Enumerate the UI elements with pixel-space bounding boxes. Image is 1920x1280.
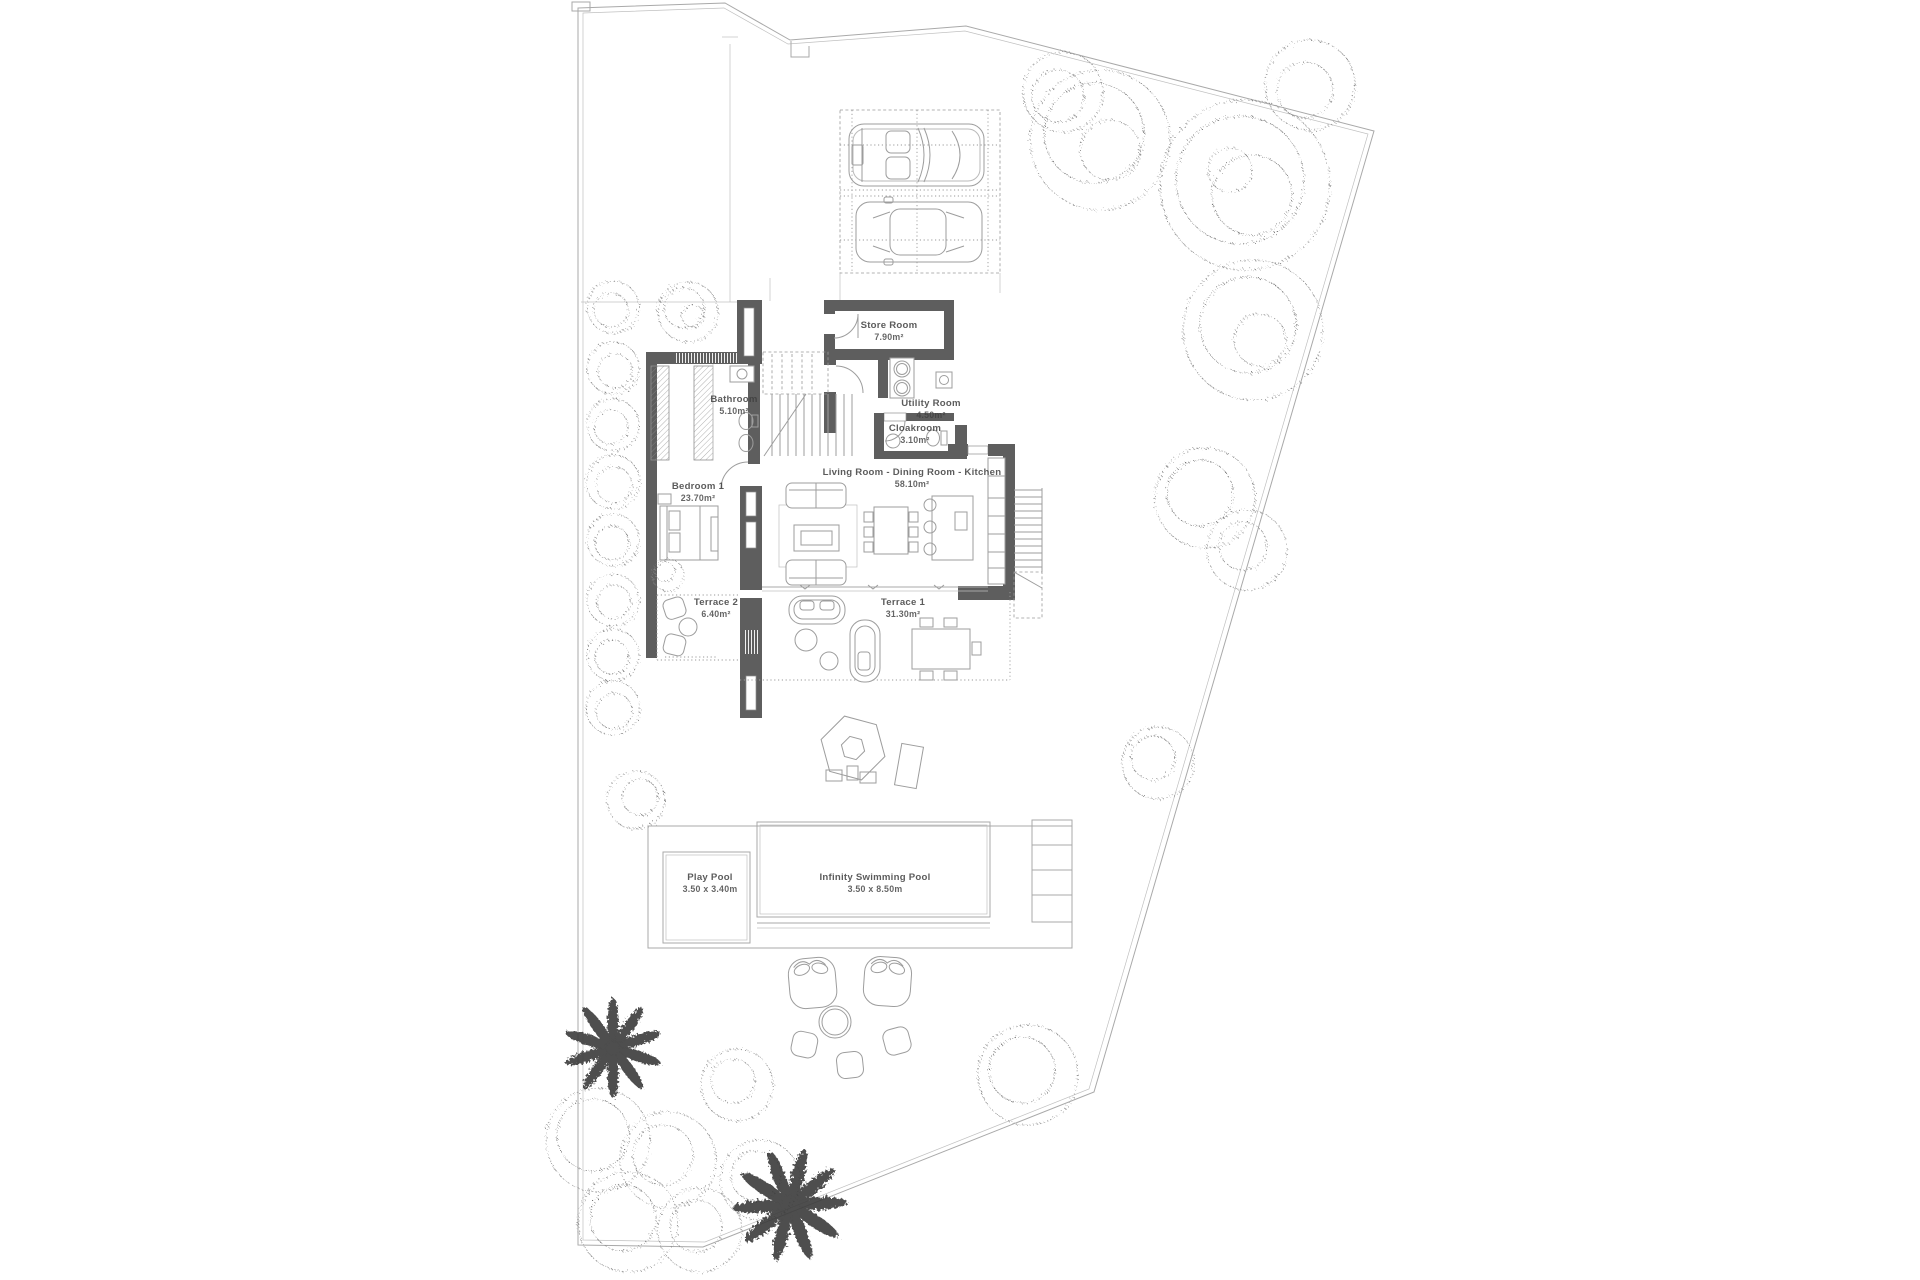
utility-sink-icon xyxy=(936,372,952,388)
sun-lounger xyxy=(787,956,838,1010)
pouf xyxy=(790,1030,820,1060)
label-store-room-area: 7.90m² xyxy=(874,332,903,342)
sun-lounger xyxy=(862,955,912,1007)
staircase xyxy=(763,352,852,456)
label-terrace-2: Terrace 2 xyxy=(694,597,738,608)
sofa-set xyxy=(779,483,857,585)
terrace-1-area xyxy=(740,592,1010,682)
label-bathroom-area: 5.10m² xyxy=(719,406,748,416)
washer-dryer-icon xyxy=(890,358,914,398)
umbrella-icon xyxy=(821,716,885,783)
label-terrace-1-area: 31.30m² xyxy=(886,609,921,619)
floor-plan-drawing: Store Room 7.90m² Bathroom 5.10m² Utilit… xyxy=(0,0,1920,1280)
terrace-armchair xyxy=(661,595,687,621)
play-pool xyxy=(663,852,750,943)
label-infinity-pool-dims: 3.50 x 8.50m xyxy=(848,884,903,894)
label-bathroom: Bathroom xyxy=(710,394,757,405)
plot-boundary xyxy=(572,2,1374,1247)
wardrobe xyxy=(651,364,713,460)
sliding-glass-doors xyxy=(762,585,988,591)
convertible-car-icon xyxy=(849,124,984,186)
dining-table-set xyxy=(864,507,918,554)
side-table xyxy=(679,618,697,636)
terrace-armchair xyxy=(662,633,687,657)
label-utility-room-area: 4.50m² xyxy=(916,410,945,420)
round-coffee-table xyxy=(795,629,817,651)
outdoor-sofa xyxy=(789,596,845,624)
label-bedroom-1-area: 23.70m² xyxy=(681,493,716,503)
label-cloakroom: Cloakroom xyxy=(889,423,941,434)
floor-plan-page: Store Room 7.90m² Bathroom 5.10m² Utilit… xyxy=(0,0,1920,1280)
shrub-row xyxy=(586,281,640,735)
label-bedroom-1: Bedroom 1 xyxy=(672,481,725,492)
pouf xyxy=(881,1025,913,1057)
label-store-room: Store Room xyxy=(861,320,918,331)
palm-tree-icon xyxy=(732,1148,848,1262)
gate-icon xyxy=(572,2,590,11)
outdoor-dining-set xyxy=(912,618,981,680)
deck-strip xyxy=(676,353,737,363)
round-coffee-table xyxy=(820,652,838,670)
pool-steps xyxy=(1032,820,1072,922)
label-living-room-area: 58.10m² xyxy=(895,479,930,489)
label-terrace-1: Terrace 1 xyxy=(881,597,926,608)
label-terrace-2-area: 6.40m² xyxy=(701,609,730,619)
sedan-car-icon xyxy=(856,197,982,265)
label-utility-room: Utility Room xyxy=(901,398,961,409)
kitchen-island xyxy=(924,496,973,560)
lounge-mat xyxy=(895,743,924,788)
label-infinity-pool: Infinity Swimming Pool xyxy=(819,872,930,883)
pouf xyxy=(836,1051,865,1080)
label-cloakroom-area: 3.10m² xyxy=(900,435,929,445)
bed xyxy=(658,494,718,560)
label-play-pool: Play Pool xyxy=(687,872,732,883)
label-living-room: Living Room - Dining Room - Kitchen xyxy=(823,467,1002,478)
label-play-pool-dims: 3.50 x 3.40m xyxy=(683,884,738,894)
palm-tree-icon xyxy=(564,998,663,1098)
exterior-staircase xyxy=(1014,488,1042,618)
daybed xyxy=(850,620,880,682)
round-table xyxy=(819,1006,851,1038)
